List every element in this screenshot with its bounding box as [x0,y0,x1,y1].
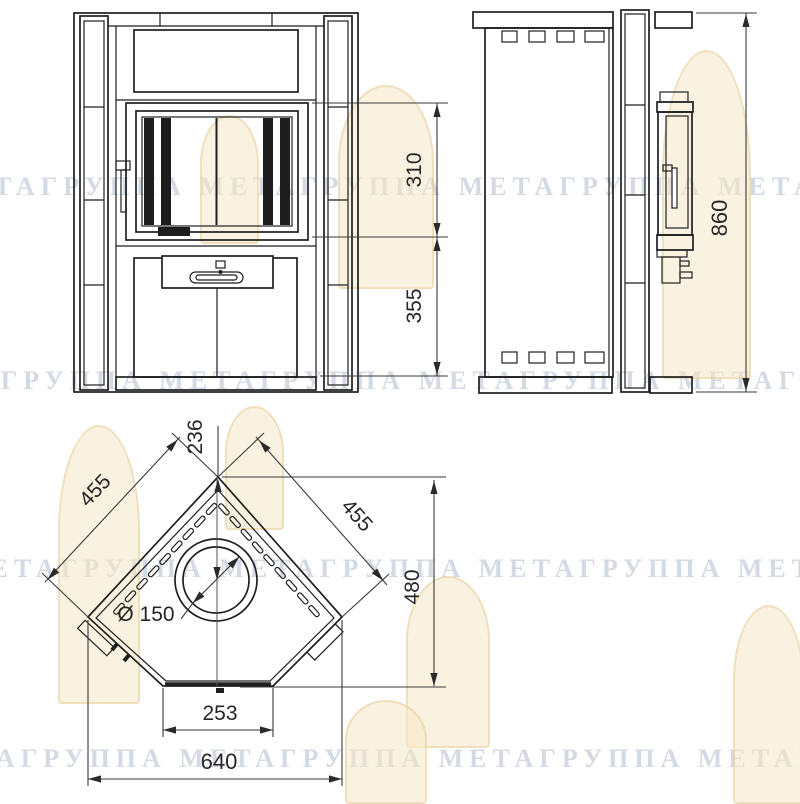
front-right-pilaster [324,16,352,390]
side-door-profile [657,92,693,283]
side-top-slab [473,12,613,28]
front-firebox-door [116,103,308,240]
front-plinth [116,377,316,390]
dim-overall-width: 640 [201,749,238,774]
side-body [485,28,613,377]
side-door-handle [663,165,672,171]
stove-drawing: 310 355 860 236 455 455 480 Ø 150 253 64… [0,0,800,800]
front-top-panel [134,30,298,92]
dim-left-side: 455 [75,470,116,511]
side-top-vents [502,31,604,42]
side-bottom-vents [502,352,604,363]
side-view [473,10,693,393]
front-view [74,13,358,392]
vent-slots-left [113,503,218,615]
dim-firebox-height: 310 [403,152,426,187]
dim-front-width: 253 [202,702,237,725]
dim-right-side: 455 [337,495,378,536]
dim-base-height: 355 [403,288,426,323]
dim-flue-diameter: Ø 150 [117,603,174,626]
side-corner-post [621,10,649,392]
ash-vent [158,227,190,236]
ash-lever [662,257,680,283]
front-lower-cabinet [116,256,316,390]
technical-drawing-page: { "page": { "background": "#ffffff", "li… [0,0,800,800]
drawer-handle [190,272,243,283]
plan-left-corner-tile [78,620,115,655]
door-hinge [124,655,129,661]
plan-right-corner-tile [307,624,343,660]
dim-overall-depth: 480 [401,569,424,604]
dim-overall-height: 860 [707,200,732,237]
door-handle [116,161,130,170]
front-left-pilaster [80,16,108,390]
door-hinge [112,644,117,650]
side-plinth [479,377,612,393]
dim-corner-to-flue: 236 [184,419,207,454]
front-center-mark [216,688,224,693]
